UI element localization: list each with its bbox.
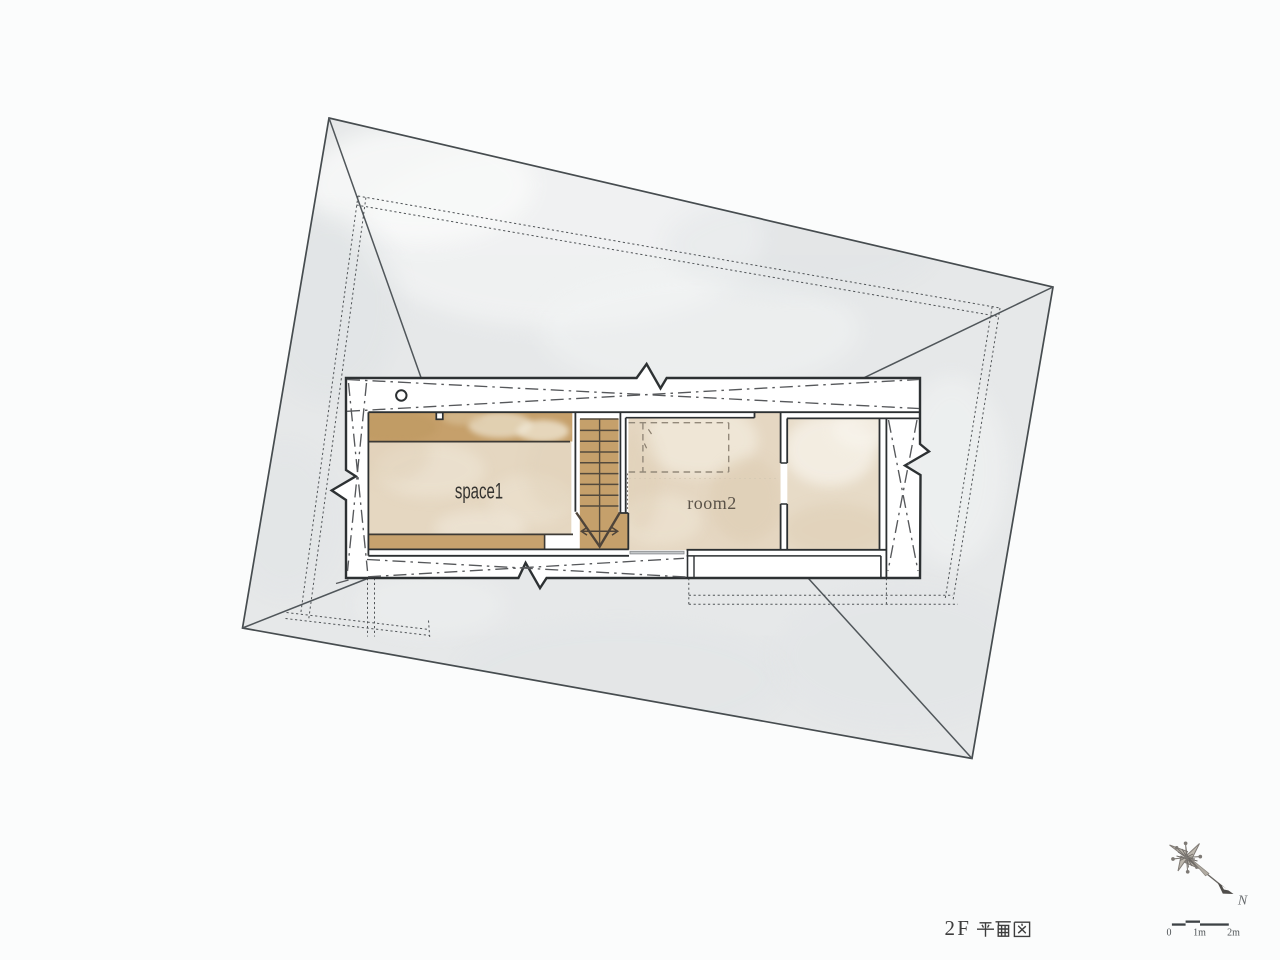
- svg-text:0: 0: [1167, 928, 1172, 939]
- svg-text:room2: room2: [687, 493, 737, 513]
- svg-text:N: N: [1237, 894, 1248, 909]
- svg-text:2F: 2F: [945, 916, 972, 940]
- svg-text:2m: 2m: [1227, 928, 1240, 939]
- svg-text:space1: space1: [455, 479, 503, 504]
- svg-text:1m: 1m: [1193, 928, 1206, 939]
